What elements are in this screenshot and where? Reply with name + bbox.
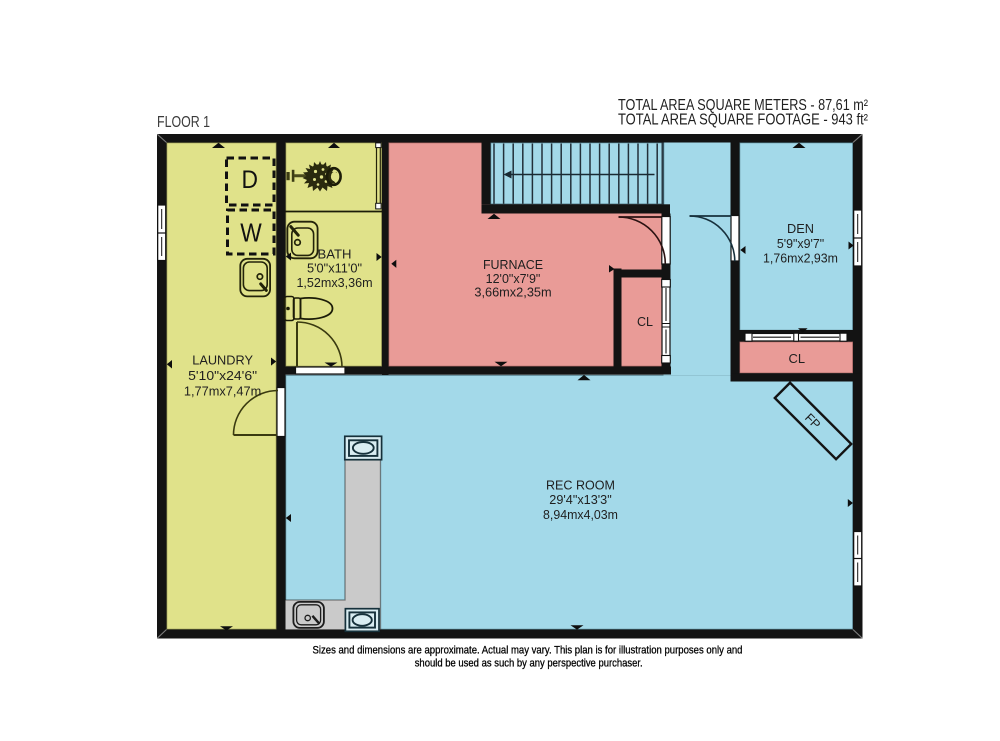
svg-text:Sizes and dimensions are appro: Sizes and dimensions are approximate. Ac… xyxy=(313,645,743,657)
svg-text:3,66mx2,35m: 3,66mx2,35m xyxy=(474,285,551,300)
svg-text:DEN: DEN xyxy=(787,221,814,236)
svg-text:LAUNDRY: LAUNDRY xyxy=(192,352,253,367)
svg-text:FURNACE: FURNACE xyxy=(483,257,543,272)
svg-text:TOTAL AREA SQUARE FOOTAGE - 9: TOTAL AREA SQUARE FOOTAGE - 943 ft² xyxy=(618,112,868,129)
svg-text:1,77mx7,47m: 1,77mx7,47m xyxy=(184,384,261,399)
svg-text:5'10"x24'6": 5'10"x24'6" xyxy=(188,368,257,383)
svg-text:5'9"x9'7": 5'9"x9'7" xyxy=(777,236,825,251)
svg-text:REC ROOM: REC ROOM xyxy=(546,478,615,493)
svg-text:1,76mx2,93m: 1,76mx2,93m xyxy=(763,251,838,266)
svg-text:CL: CL xyxy=(789,351,806,366)
svg-text:29'4"x13'3": 29'4"x13'3" xyxy=(549,492,612,507)
svg-text:CL: CL xyxy=(637,314,653,329)
svg-text:1,52mx3,36m: 1,52mx3,36m xyxy=(296,275,372,290)
svg-text:should be used as such by any: should be used as such by any perspectiv… xyxy=(415,657,643,669)
svg-text:D: D xyxy=(241,166,258,194)
svg-text:W: W xyxy=(240,217,262,247)
svg-text:8,94mx4,03m: 8,94mx4,03m xyxy=(543,507,618,522)
svg-text:5'0"x11'0": 5'0"x11'0" xyxy=(307,260,362,275)
svg-text:FLOOR 1: FLOOR 1 xyxy=(157,114,210,131)
svg-text:BATH: BATH xyxy=(318,246,352,261)
